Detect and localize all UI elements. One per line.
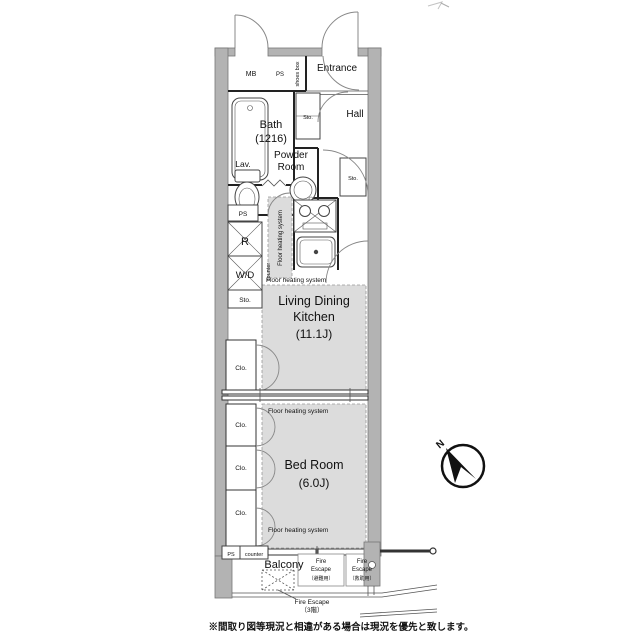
evacuation-hatch-icon bbox=[262, 570, 294, 590]
label-fe-right-2: Escape bbox=[352, 567, 373, 573]
label-bedroom: Bed Room bbox=[284, 458, 343, 472]
label-entrance: Entrance bbox=[317, 63, 357, 74]
label-fe-right-3: （救助用） bbox=[349, 575, 374, 582]
label-ps-top: PS bbox=[276, 72, 284, 78]
label-clo-2: Clo. bbox=[235, 465, 247, 472]
label-sto-hall: Sto. bbox=[303, 115, 313, 121]
label-floor-heating-bed-top: Floor heating system bbox=[268, 408, 328, 415]
label-ldk-size: (11.1J) bbox=[296, 327, 332, 341]
top-edge-artifact bbox=[428, 2, 449, 9]
label-clo-1: Clo. bbox=[235, 422, 247, 429]
label-floor-heating-ldk: Floor heating system bbox=[266, 277, 326, 284]
kitchen-sink-icon bbox=[297, 237, 335, 267]
label-shoes-box: shoes box bbox=[295, 61, 301, 86]
label-ldk-2: Kitchen bbox=[293, 310, 335, 324]
label-fe-left-3: （避難用） bbox=[308, 575, 333, 582]
label-washer-dryer: W/D bbox=[236, 270, 255, 281]
label-powder-2: Room bbox=[278, 162, 305, 173]
label-hall: Hall bbox=[346, 109, 363, 120]
bath-folding-door bbox=[262, 180, 286, 186]
label-bath-size: (1216) bbox=[255, 133, 287, 145]
label-fe-hatch-1: Fire Escape bbox=[295, 599, 330, 606]
label-fe-left-1: Fire bbox=[316, 559, 327, 565]
label-sto-mid: Sto. bbox=[348, 176, 358, 182]
stove-icon bbox=[294, 200, 336, 232]
label-lav: Lav. bbox=[235, 159, 250, 169]
label-fe-left-2: Escape bbox=[311, 567, 332, 573]
sliding-partition bbox=[222, 388, 368, 402]
label-ldk-1: Living Dining bbox=[278, 294, 350, 308]
label-sto-small: Sto. bbox=[239, 297, 251, 304]
label-clo-ldk: Clo. bbox=[235, 365, 247, 372]
floor-plan-page: N MB PS shoes box Entrance Bath (1216) S… bbox=[0, 0, 640, 640]
label-fe-right-1: Fire bbox=[357, 559, 368, 565]
washbasin-icon bbox=[290, 177, 316, 203]
label-balcony: Balcony bbox=[264, 559, 304, 571]
disclaimer-text: ※間取り図等現況と相違がある場合は現況を優先と致します。 bbox=[208, 621, 473, 633]
compass-north-label: N bbox=[434, 438, 447, 451]
label-floor-heating-vertical: Floor heating system bbox=[278, 210, 284, 266]
label-bedroom-size: (6.0J) bbox=[299, 476, 330, 490]
label-mb: MB bbox=[246, 71, 257, 78]
label-floor-heating-bed-bottom: Floor heating system bbox=[268, 527, 328, 534]
label-fe-hatch-2: （3階） bbox=[300, 605, 323, 614]
label-powder-1: Powder bbox=[274, 150, 309, 161]
floor-plan: N MB PS shoes box Entrance Bath (1216) S… bbox=[0, 0, 640, 640]
label-bath: Bath bbox=[260, 119, 283, 131]
label-refrigerator: R bbox=[241, 236, 249, 248]
label-clo-3: Clo. bbox=[235, 510, 247, 517]
label-ps-mid: PS bbox=[239, 211, 248, 218]
compass: N bbox=[434, 438, 484, 487]
label-ps-bottom: PS bbox=[227, 552, 235, 558]
label-counter-bottom: counter bbox=[245, 552, 264, 558]
